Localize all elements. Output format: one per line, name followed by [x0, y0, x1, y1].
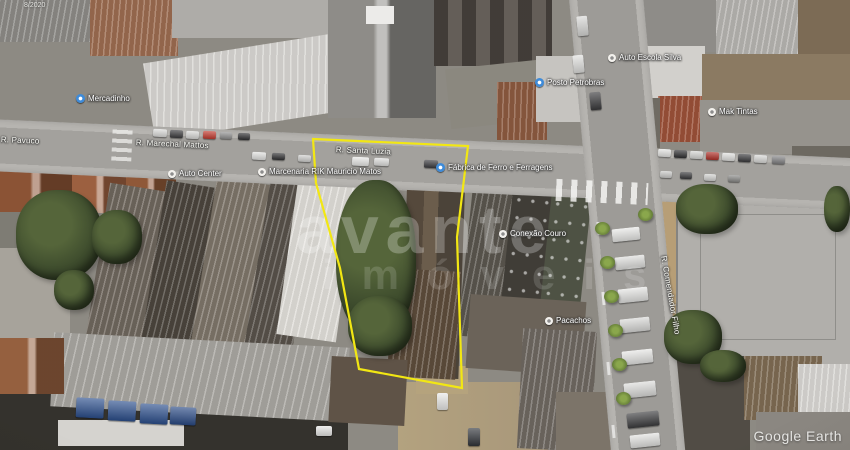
- place-label[interactable]: Marcenaria RIK Mauricio Matos: [258, 167, 381, 176]
- street-label: R. Santa Luzia: [336, 145, 392, 156]
- map-labels-layer: R. PavucoR. Marechal MattosR. Santa Luzi…: [0, 0, 850, 450]
- google-earth-credit: Google Earth: [754, 428, 843, 444]
- place-label-text: Mak Tintas: [719, 107, 758, 116]
- poi-dot-icon[interactable]: [608, 54, 616, 62]
- satellite-map[interactable]: avante imóveis R. PavucoR. Marechal Matt…: [0, 0, 850, 450]
- poi-marker-icon[interactable]: [76, 94, 85, 103]
- poi-marker-icon[interactable]: [535, 78, 544, 87]
- place-label-text: Conexão Couro: [510, 229, 566, 238]
- place-label-text: Pacachos: [556, 316, 591, 325]
- place-label-text: Mercadinho: [88, 94, 130, 103]
- place-label[interactable]: Posto Petrobras: [535, 78, 604, 87]
- place-label[interactable]: Auto Escola Silva: [608, 53, 681, 62]
- poi-dot-icon[interactable]: [708, 108, 716, 116]
- street-label: R. Comendador Filho: [659, 255, 682, 335]
- imagery-date-label: 8/2020: [24, 2, 45, 9]
- poi-dot-icon[interactable]: [258, 168, 266, 176]
- place-label[interactable]: Pacachos: [545, 316, 591, 325]
- place-label[interactable]: Mak Tintas: [708, 107, 758, 116]
- poi-dot-icon[interactable]: [545, 317, 553, 325]
- place-label-text: Fábrica de Ferro e Ferragens: [448, 163, 553, 172]
- place-label[interactable]: Fábrica de Ferro e Ferragens: [436, 163, 553, 172]
- poi-dot-icon[interactable]: [168, 170, 176, 178]
- place-label[interactable]: Conexão Couro: [499, 229, 566, 238]
- street-label: R. Marechal Mattos: [136, 138, 209, 150]
- poi-dot-icon[interactable]: [499, 230, 507, 238]
- poi-marker-icon[interactable]: [436, 163, 445, 172]
- place-label-text: Posto Petrobras: [547, 78, 604, 87]
- place-label-text: Auto Center: [179, 169, 222, 178]
- place-label[interactable]: Auto Center: [168, 169, 222, 178]
- place-label-text: Auto Escola Silva: [619, 53, 681, 62]
- place-label[interactable]: Mercadinho: [76, 94, 130, 103]
- street-label: R. Pavuco: [1, 135, 40, 146]
- place-label-text: Marcenaria RIK Mauricio Matos: [269, 167, 381, 176]
